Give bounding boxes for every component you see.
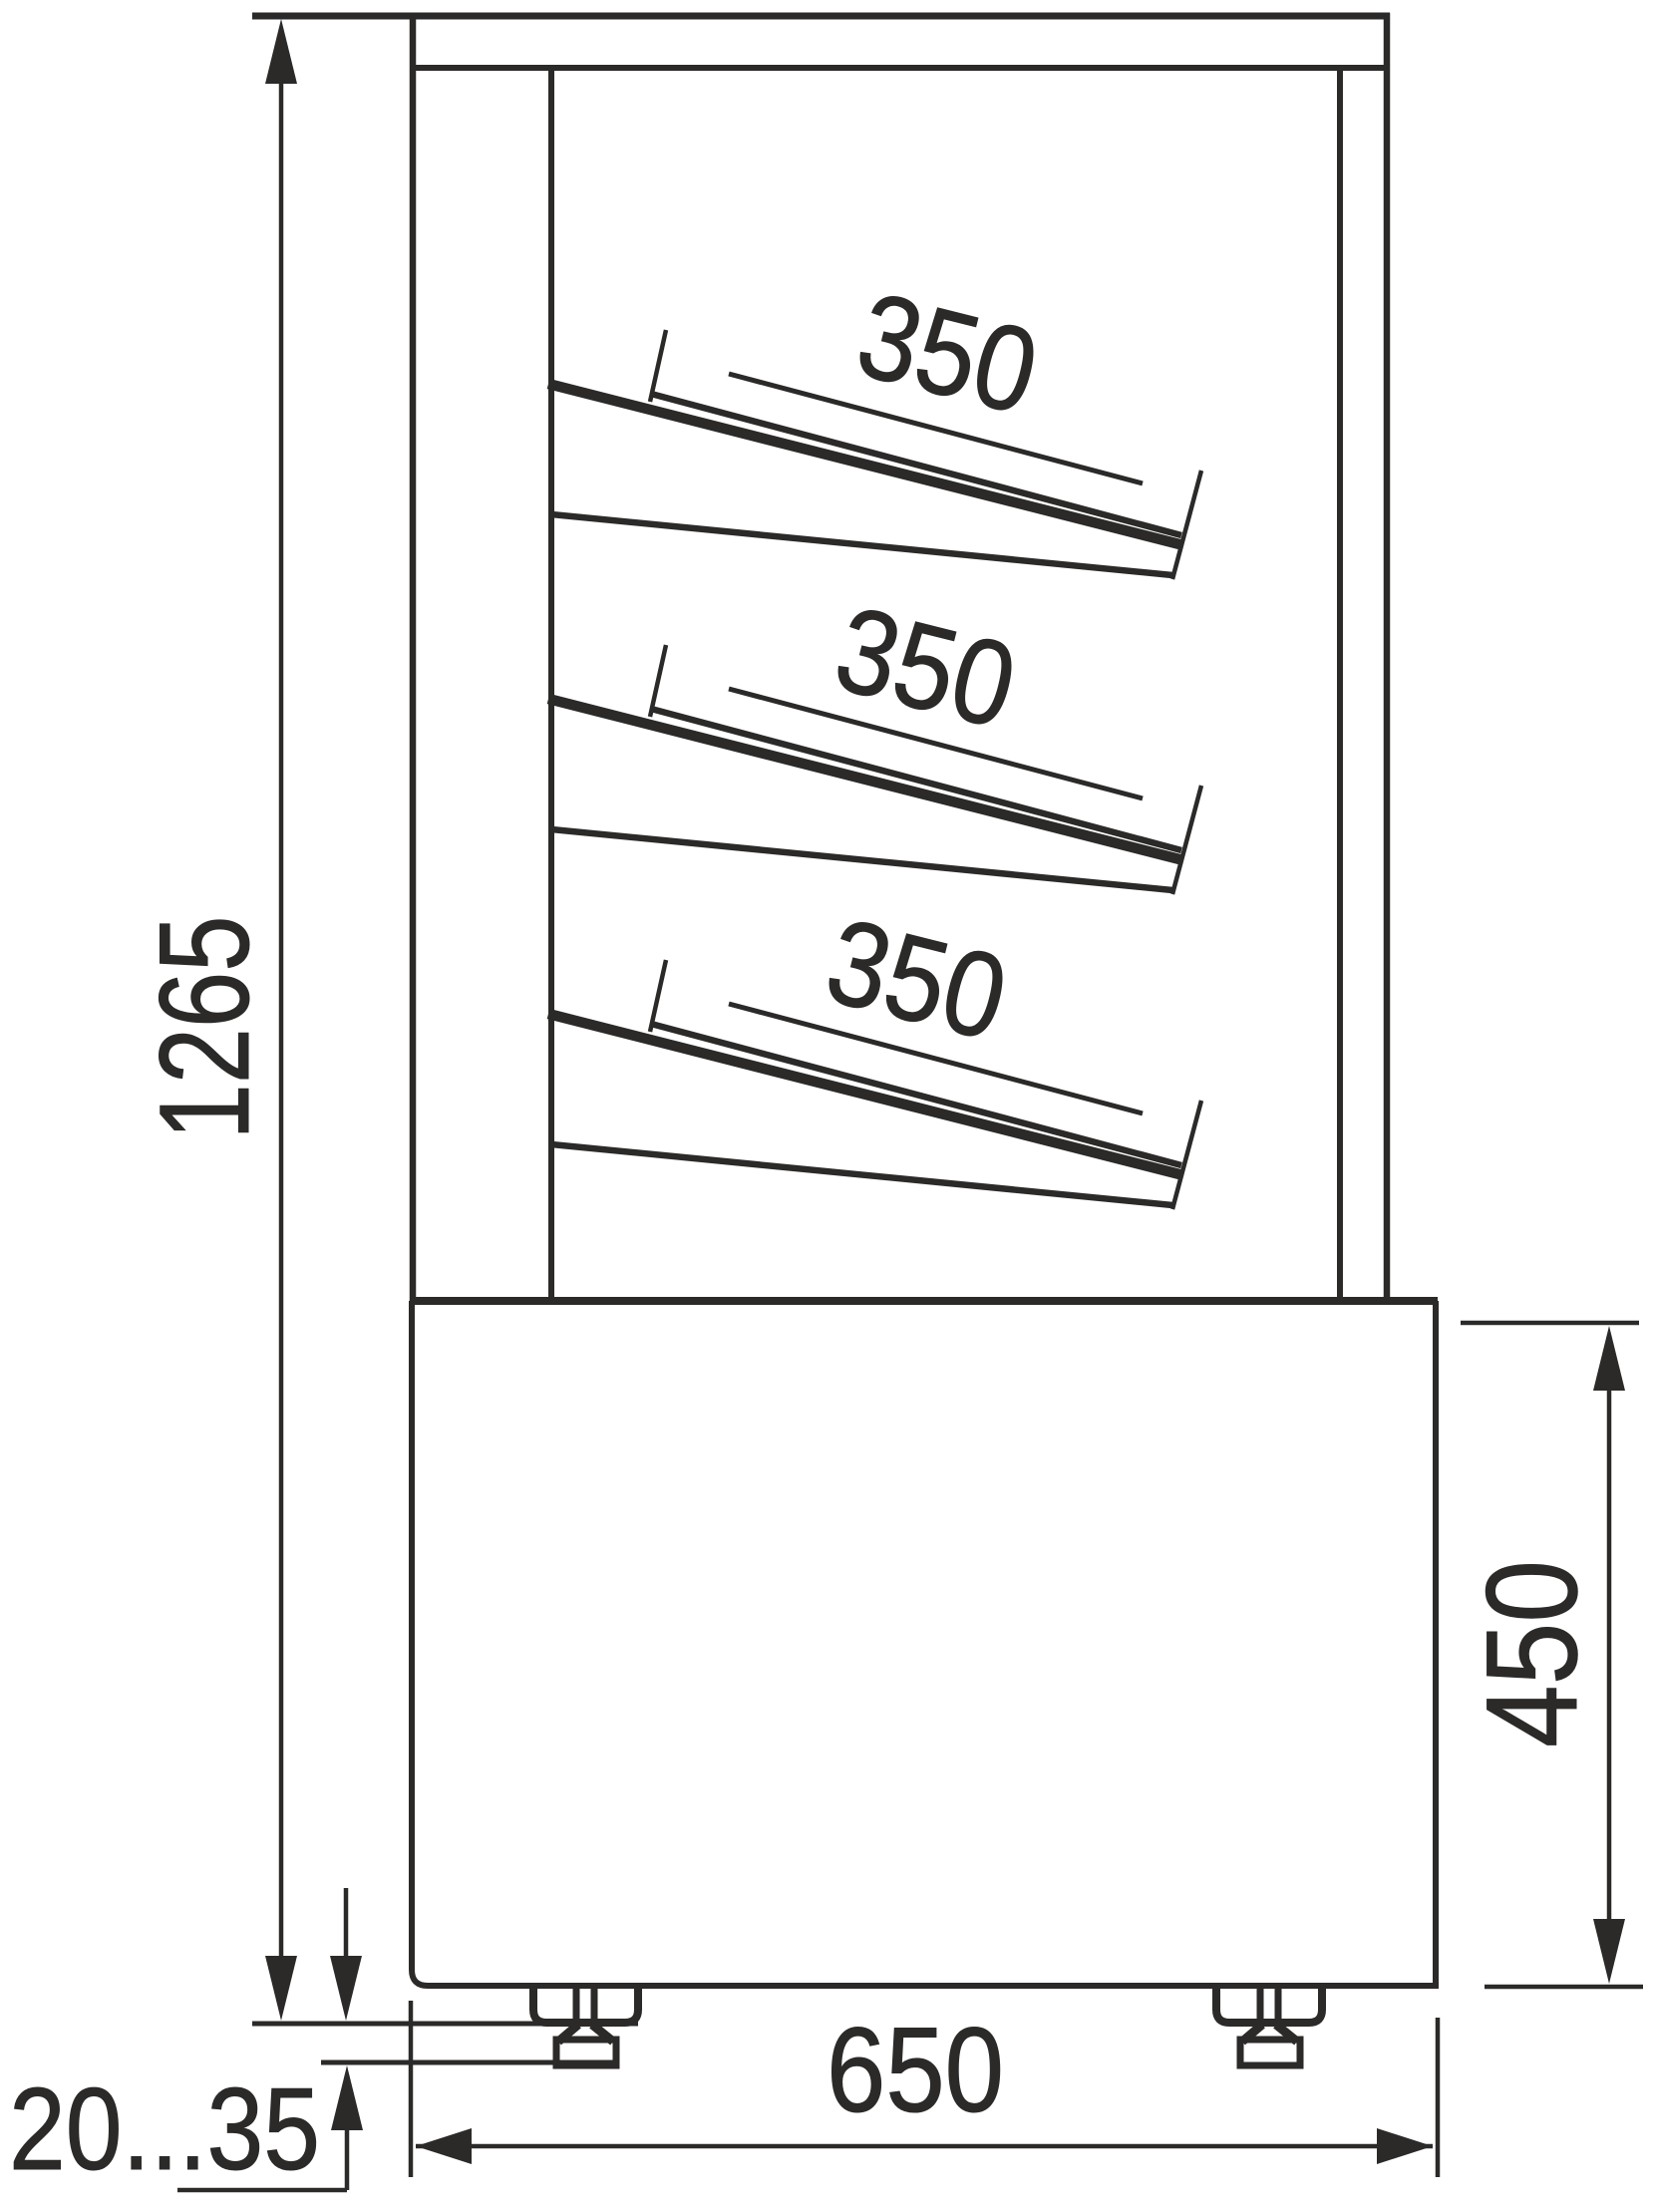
svg-text:20...35: 20...35 [9, 2063, 320, 2194]
svg-text:450: 450 [1459, 1560, 1604, 1747]
svg-text:650: 650 [827, 2002, 1004, 2137]
svg-text:350: 350 [824, 579, 1029, 754]
svg-text:1265: 1265 [134, 916, 276, 1140]
svg-text:350: 350 [815, 891, 1020, 1066]
